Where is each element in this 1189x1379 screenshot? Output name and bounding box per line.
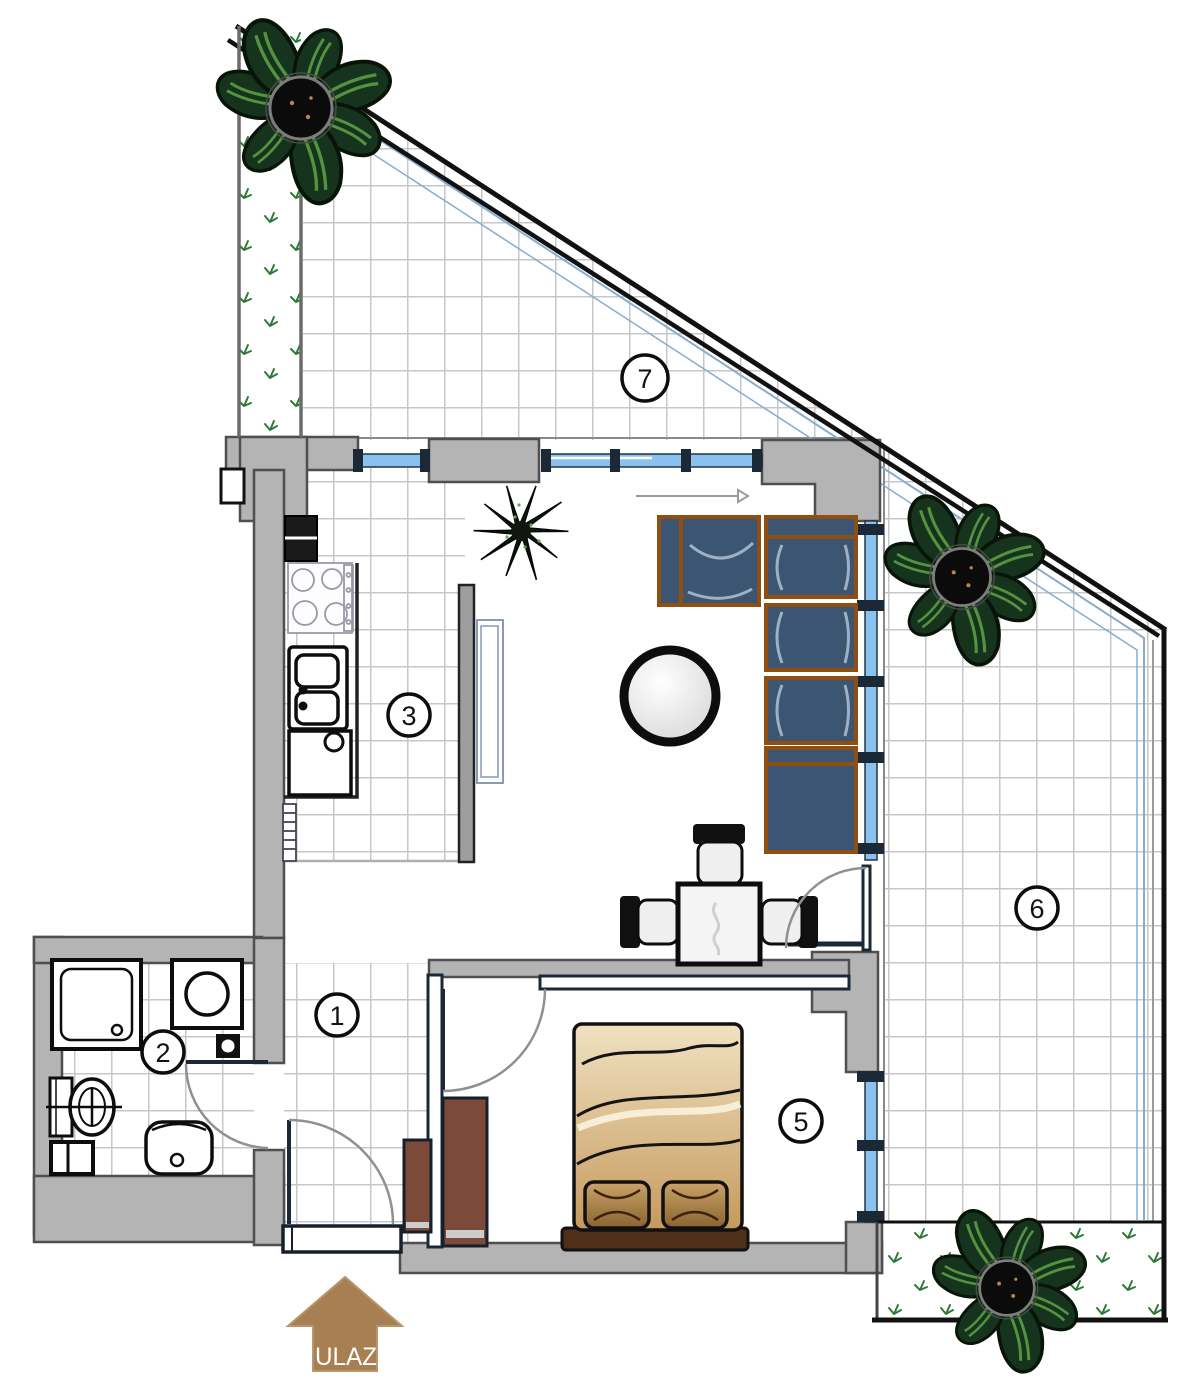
wall-top-middle	[429, 439, 539, 482]
shower	[52, 960, 141, 1049]
wall-left	[254, 470, 284, 938]
sink	[289, 647, 347, 729]
bath-cabinet	[51, 1142, 93, 1174]
chair-seat	[698, 842, 742, 884]
bedroom	[404, 1024, 748, 1250]
bed	[562, 1024, 748, 1250]
room-label-bedroom: 5	[780, 1100, 822, 1142]
bathroom-wall-right-lower	[254, 1150, 284, 1245]
window-mullion	[857, 524, 884, 535]
room-number: 3	[401, 701, 416, 731]
window-mullion	[857, 1211, 884, 1222]
living-window-right	[865, 521, 877, 860]
hall-cabinet	[404, 1140, 431, 1232]
bed-pillow	[585, 1182, 649, 1228]
bed-pillow	[663, 1182, 727, 1228]
window-mullion	[857, 1071, 884, 1082]
slide-direction-arrow	[636, 490, 748, 502]
plant-icon	[474, 486, 569, 580]
radiator	[283, 804, 296, 861]
room-label-terrace-right: 6	[1016, 887, 1058, 929]
room-label-bathroom: 2	[142, 1031, 184, 1073]
room-number: 6	[1029, 894, 1044, 924]
chair-seat	[762, 900, 802, 944]
window-mullion	[610, 449, 620, 472]
room-number: 2	[155, 1038, 170, 1068]
window-mullion	[420, 449, 430, 472]
living-room	[620, 517, 856, 964]
bedroom-door	[443, 989, 545, 1091]
hall-cabinet-base	[406, 1222, 429, 1228]
floor-plan-svg: 7 3 6 1 2 5 ULAZ	[0, 0, 1189, 1379]
wall-top-right-L	[762, 440, 880, 521]
window-mullion	[857, 676, 884, 687]
window-mullion	[857, 600, 884, 611]
bidet	[146, 1122, 212, 1174]
room-label-terrace-top: 7	[622, 355, 668, 401]
base-cabinet	[289, 731, 351, 795]
window-mullion	[857, 752, 884, 763]
bedroom-wall-top	[540, 976, 849, 989]
entrance-label: ULAZ	[315, 1343, 377, 1371]
living-window	[546, 454, 762, 467]
bathroom-wall-bottom	[34, 1176, 284, 1242]
duct-niche	[221, 469, 244, 503]
wardrobe-base	[446, 1230, 484, 1238]
washing-machine	[172, 960, 242, 1028]
room-label-kitchen: 3	[388, 694, 430, 736]
chair-seat	[638, 900, 678, 944]
floor-drain	[216, 1034, 240, 1058]
room-label-hallway: 1	[316, 994, 358, 1036]
entrance-threshold	[283, 1226, 401, 1252]
window-mullion	[541, 449, 551, 472]
room-number: 1	[329, 1001, 344, 1031]
entrance-marker: ULAZ	[288, 1277, 402, 1371]
room-number: 7	[637, 364, 652, 394]
floor-plan: 7 3 6 1 2 5 ULAZ	[0, 0, 1189, 1379]
bedroom-wardrobe	[443, 1098, 487, 1246]
window-mullion	[681, 449, 691, 472]
window-mullion	[752, 449, 762, 472]
cooktop	[288, 563, 353, 633]
partition-slab	[459, 585, 474, 862]
window-mullion	[353, 449, 363, 472]
kitchen-window	[358, 454, 427, 467]
room-number: 5	[793, 1107, 808, 1137]
window-mullion	[857, 843, 884, 854]
window-mullion	[857, 1140, 884, 1151]
wall-living-bedroom-divider	[429, 960, 849, 977]
bathroom-wall-right-upper	[254, 938, 284, 1063]
coffee-table	[624, 650, 716, 742]
